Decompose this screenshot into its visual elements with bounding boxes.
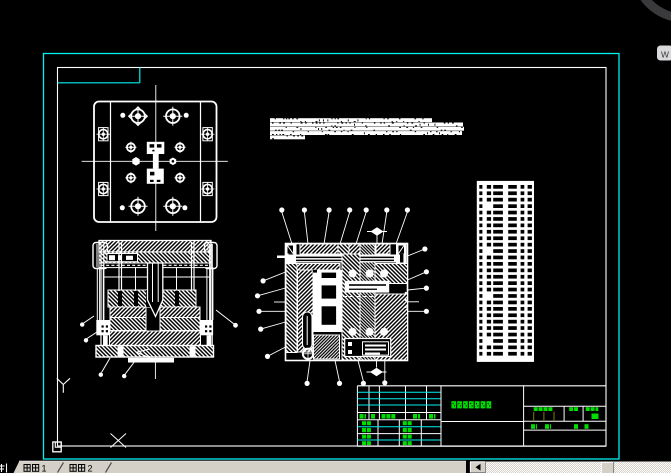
svg-text:w: w [660, 49, 669, 61]
svg-text:2: 2 [88, 464, 93, 473]
svg-text:1: 1 [42, 464, 47, 473]
